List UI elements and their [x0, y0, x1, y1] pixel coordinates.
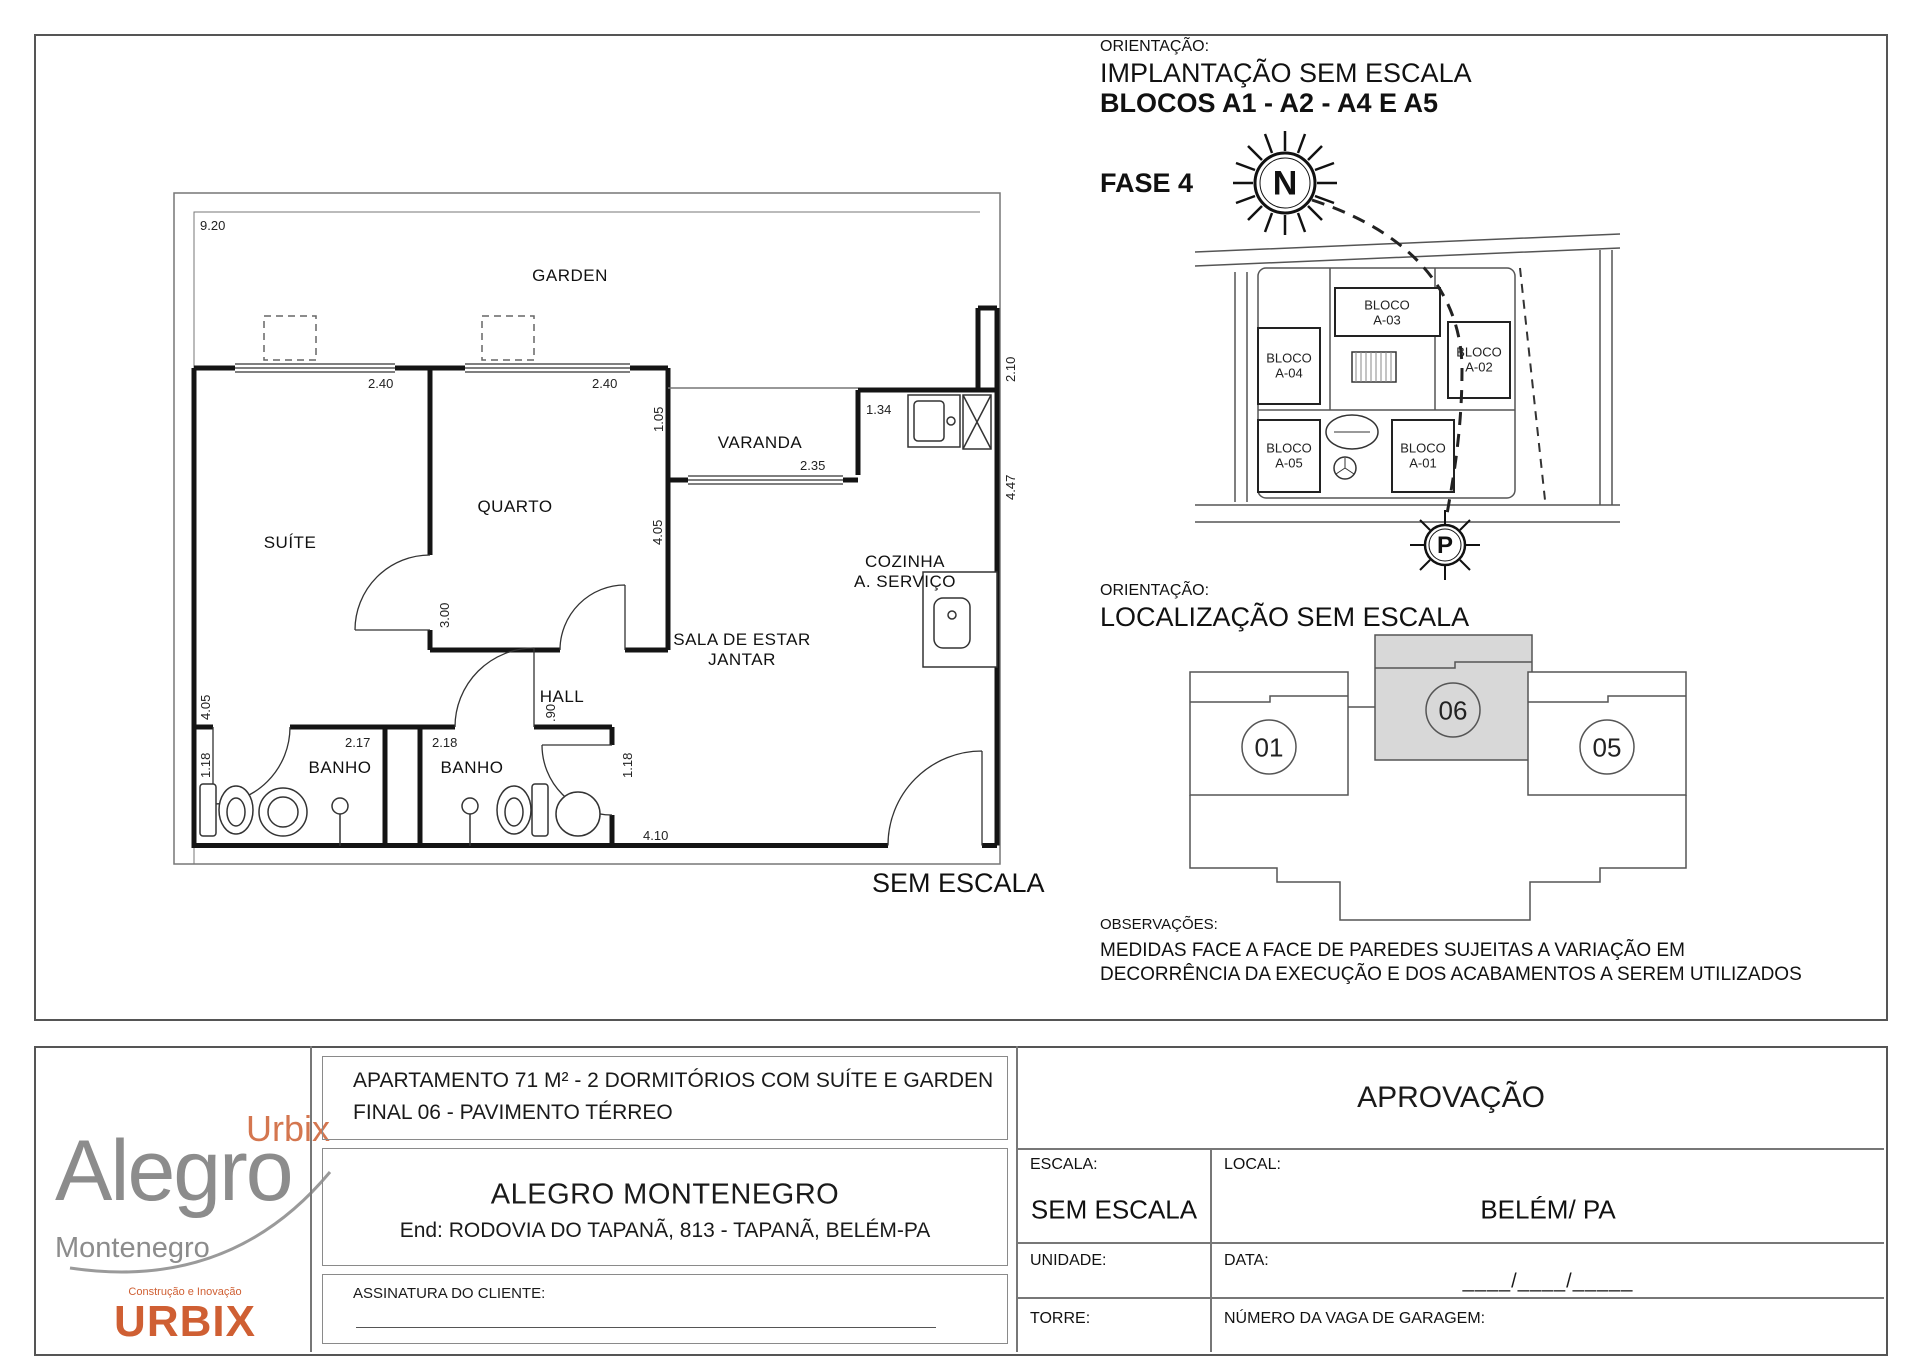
dim-banho-left-width: 2.17 [345, 735, 370, 750]
local-label: LOCAL: [1224, 1156, 1281, 1174]
block-a05-code: A-05 [1275, 456, 1302, 471]
implantacao-orientacao-label: ORIENTAÇÃO: [1100, 38, 1209, 56]
room-label-sala-2: JANTAR [708, 650, 776, 670]
dim-banho-right-height: 1.18 [620, 753, 635, 778]
observacoes-label: OBSERVAÇÕES: [1100, 916, 1218, 933]
unidade-label: UNIDADE: [1030, 1252, 1106, 1270]
implantacao-title: IMPLANTAÇÃO SEM ESCALA [1100, 58, 1472, 89]
logo-montenegro: Montenegro [55, 1232, 210, 1265]
signature-line[interactable] [356, 1327, 936, 1328]
dim-varanda-height: 1.05 [651, 407, 666, 432]
data-label: DATA: [1224, 1252, 1269, 1270]
block-a03-name: BLOCO [1364, 298, 1410, 313]
observacoes-line2: DECORRÊNCIA DA EXECUÇÃO E DOS ACABAMENTO… [1100, 964, 1802, 986]
bathroom-fixtures [200, 784, 600, 846]
signature-box: ASSINATURA DO CLIENTE: [322, 1274, 1008, 1344]
localizacao-orientacao-label: ORIENTAÇÃO: [1100, 582, 1209, 600]
implantacao-subtitle: BLOCOS A1 - A2 - A4 E A5 [1100, 88, 1438, 119]
room-label-varanda: VARANDA [718, 433, 802, 453]
window-symbols [235, 362, 843, 485]
logo-urbix-big: URBIX [114, 1297, 256, 1347]
dim-quarto-wall: 3.00 [437, 603, 452, 628]
scale-label: ESCALA: [1030, 1156, 1098, 1174]
project-box: ALEGRO MONTENEGRO End: RODOVIA DO TAPANÃ… [322, 1148, 1008, 1266]
dim-quarto-width: 2.40 [592, 376, 617, 391]
planter-dashed [264, 316, 534, 360]
dim-kitchen-height: 4.47 [1003, 475, 1018, 500]
site-plan-drawing [1195, 234, 1620, 522]
block-a01-name: BLOCO [1400, 441, 1446, 456]
block-a03-code: A-03 [1373, 313, 1400, 328]
parking-letter: P [1437, 532, 1453, 560]
garage-label: NÚMERO DA VAGA DE GARAGEM: [1224, 1310, 1485, 1328]
unit-06-number: 06 [1439, 696, 1468, 727]
block-a01-code: A-01 [1409, 456, 1436, 471]
block-a02-code: A-02 [1465, 360, 1492, 375]
dim-suite-width: 2.40 [368, 376, 393, 391]
titleblock-divider-1 [310, 1046, 312, 1352]
unit-01-number: 01 [1255, 733, 1284, 764]
dim-varanda-window: 2.35 [800, 458, 825, 473]
titleblock-divider-2 [1016, 1046, 1018, 1352]
project-name: ALEGRO MONTENEGRO [491, 1179, 840, 1212]
unit-05-number: 05 [1593, 733, 1622, 764]
block-a05-name: BLOCO [1266, 441, 1312, 456]
dim-garden-width: 9.20 [200, 218, 225, 233]
room-label-cozinha-2: A. SERVIÇO [854, 572, 956, 592]
dim-sala-wall: 4.05 [650, 520, 665, 545]
description-box: APARTAMENTO 71 M² - 2 DORMITÓRIOS COM SU… [322, 1056, 1008, 1140]
dim-sala-width: 4.10 [643, 828, 668, 843]
approval-row-divider-1 [1018, 1148, 1884, 1150]
approval-row-divider-2 [1018, 1242, 1884, 1244]
dim-banho-right-width: 2.18 [432, 735, 457, 750]
kitchen-fixtures [908, 395, 997, 667]
floor-plan-drawing [174, 193, 1000, 864]
signature-label: ASSINATURA DO CLIENTE: [353, 1285, 545, 1302]
room-label-suite: SUÍTE [264, 533, 317, 553]
description-line-2: FINAL 06 - PAVIMENTO TÉRREO [353, 1101, 673, 1125]
observacoes-line1: MEDIDAS FACE A FACE DE PAREDES SUJEITAS … [1100, 940, 1685, 962]
logo-alegro: Alegro [55, 1122, 292, 1221]
description-line-1: APARTAMENTO 71 M² - 2 DORMITÓRIOS COM SU… [353, 1069, 993, 1093]
project-address: End: RODOVIA DO TAPANÃ, 813 - TAPANÃ, BE… [400, 1219, 931, 1243]
door-symbols [213, 555, 982, 846]
block-a04-code: A-04 [1275, 366, 1302, 381]
dim-hall-door: .90 [543, 704, 558, 722]
room-label-banho-left: BANHO [309, 758, 372, 778]
room-label-sala-1: SALA DE ESTAR [673, 630, 811, 650]
north-letter: N [1273, 165, 1298, 204]
dim-service-height: 2.10 [1003, 357, 1018, 382]
block-a02-name: BLOCO [1456, 345, 1502, 360]
dim-suite-wall: 4.05 [198, 695, 213, 720]
room-label-garden: GARDEN [532, 266, 608, 286]
floor-plan-scale-note: SEM ESCALA [872, 868, 1045, 899]
local-value: BELÉM/ PA [1480, 1195, 1615, 1226]
room-label-quarto: QUARTO [477, 497, 552, 517]
localizacao-title: LOCALIZAÇÃO SEM ESCALA [1100, 602, 1469, 633]
scale-value: SEM ESCALA [1031, 1195, 1197, 1226]
room-label-cozinha-1: COZINHA [865, 552, 945, 572]
approval-title: APROVAÇÃO [1357, 1081, 1545, 1115]
dim-kitchen-wall: 1.34 [866, 402, 891, 417]
approval-row-divider-3 [1018, 1297, 1884, 1299]
room-label-banho-right: BANHO [441, 758, 504, 778]
location-diagram [1190, 635, 1686, 920]
block-a04-name: BLOCO [1266, 351, 1312, 366]
dim-banho-left-height: 1.18 [198, 753, 213, 778]
phase-label: FASE 4 [1100, 168, 1193, 199]
approval-col-divider [1210, 1148, 1212, 1352]
torre-label: TORRE: [1030, 1310, 1090, 1328]
date-slots[interactable]: ____/____/_____ [1463, 1271, 1634, 1294]
